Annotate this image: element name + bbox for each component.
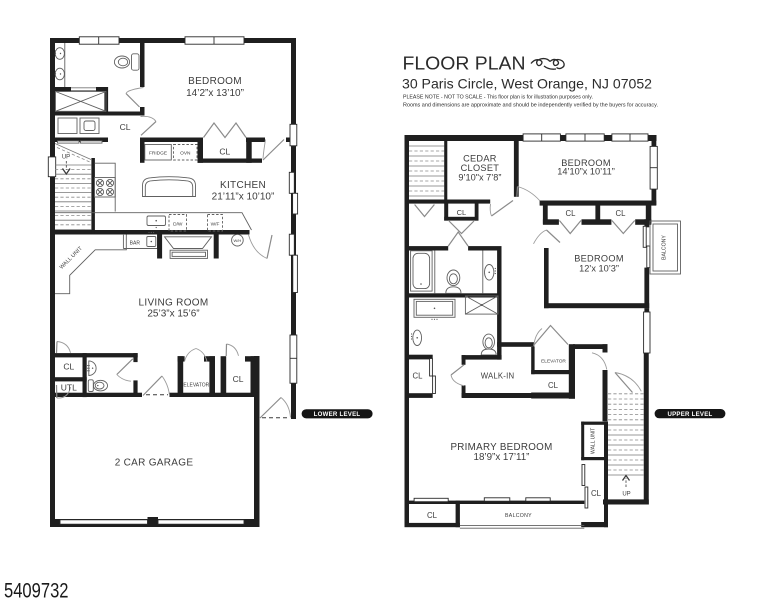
svg-text:FRIDGE: FRIDGE <box>149 151 167 157</box>
svg-text:CL: CL <box>427 511 438 520</box>
svg-text:CL: CL <box>63 362 74 372</box>
svg-text:2 CAR GARAGE: 2 CAR GARAGE <box>115 458 194 469</box>
svg-text:CLOSET: CLOSET <box>461 163 500 173</box>
svg-text:WALL UNIT: WALL UNIT <box>590 428 596 454</box>
svg-text:9’10"x 7’8”: 9’10"x 7’8” <box>458 173 501 183</box>
svg-text:PLEASE NOTE - NOT TO SCALE - T: PLEASE NOTE - NOT TO SCALE - This floor … <box>403 95 593 101</box>
svg-text:ELEVATOR: ELEVATOR <box>183 382 209 388</box>
svg-text:LIVING ROOM: LIVING ROOM <box>139 298 209 309</box>
svg-text:W/H: W/H <box>234 238 242 243</box>
svg-text:Rooms and dimensions are appro: Rooms and dimensions are approximate and… <box>403 103 658 109</box>
svg-text:CEDAR: CEDAR <box>463 154 497 164</box>
svg-text:30 Paris Circle, West Orange,: 30 Paris Circle, West Orange, NJ 07052 <box>402 76 652 92</box>
svg-text:CL: CL <box>616 209 627 218</box>
svg-text:BEDROOM: BEDROOM <box>574 254 624 264</box>
svg-text:CL: CL <box>548 381 559 390</box>
svg-text:5409732: 5409732 <box>4 579 69 600</box>
svg-text:BALCONY: BALCONY <box>662 235 668 260</box>
svg-text:21’11”x 10’10”: 21’11”x 10’10” <box>212 192 275 203</box>
svg-text:CL: CL <box>219 147 230 157</box>
svg-text:UP: UP <box>62 155 70 161</box>
svg-text:FLOOR PLAN: FLOOR PLAN <box>403 54 526 74</box>
svg-text:BALCONY: BALCONY <box>505 513 532 519</box>
svg-text:D/W: D/W <box>173 221 183 227</box>
svg-text:BAR: BAR <box>130 241 141 247</box>
svg-text:OVN: OVN <box>180 151 191 157</box>
svg-text:CL: CL <box>566 209 577 218</box>
svg-text:18’9”x 17’11”: 18’9”x 17’11” <box>474 452 530 463</box>
svg-text:CL: CL <box>413 372 424 381</box>
svg-text:14’10”x 10’11”: 14’10”x 10’11” <box>557 167 615 177</box>
svg-text:25’3”x 15’6”: 25’3”x 15’6” <box>147 309 199 320</box>
svg-text:WALK-IN: WALK-IN <box>481 372 515 381</box>
svg-text:LOWER LEVEL: LOWER LEVEL <box>314 411 361 418</box>
svg-text:W/F: W/F <box>211 221 220 227</box>
svg-text:UPPER LEVEL: UPPER LEVEL <box>667 411 712 418</box>
svg-text:CL: CL <box>457 208 467 217</box>
svg-text:12’x 10’3”: 12’x 10’3” <box>579 264 619 274</box>
svg-text:UTL: UTL <box>61 382 77 392</box>
svg-text:BEDROOM: BEDROOM <box>188 76 242 87</box>
svg-text:ELEVATOR: ELEVATOR <box>541 358 566 364</box>
svg-text:UP: UP <box>622 492 630 498</box>
svg-text:CL: CL <box>591 489 602 498</box>
svg-text:KITCHEN: KITCHEN <box>220 180 266 191</box>
svg-text:CL: CL <box>233 374 244 384</box>
svg-text:CL: CL <box>120 122 131 132</box>
svg-text:14’2”x 13’10”: 14’2”x 13’10” <box>186 88 244 99</box>
